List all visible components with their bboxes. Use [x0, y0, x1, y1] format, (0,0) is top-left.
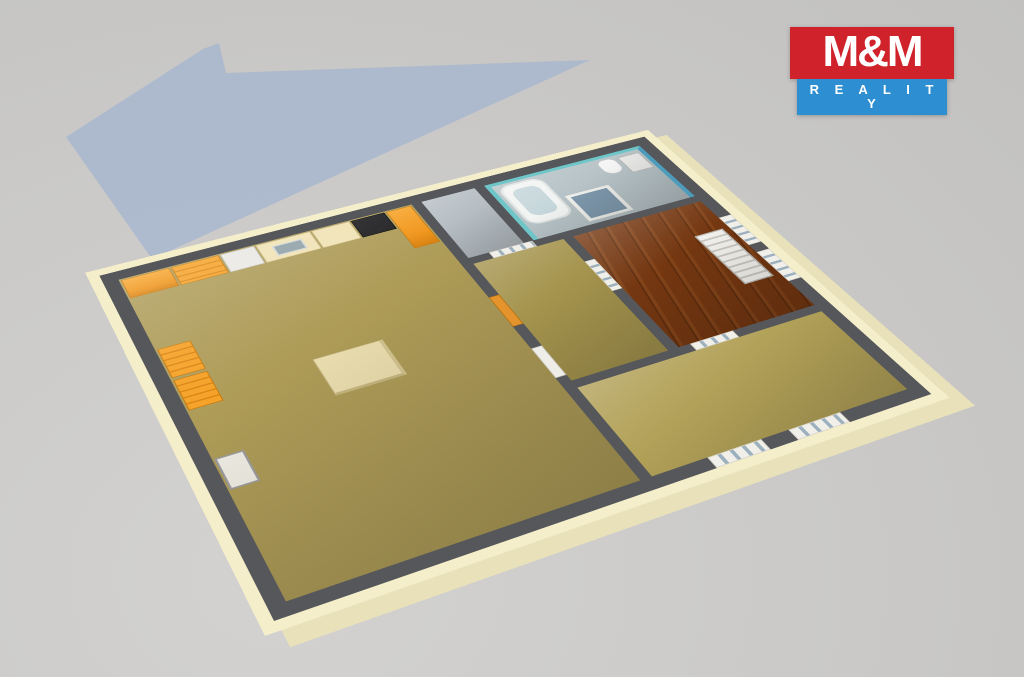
- side-drawer-cabinet: [157, 340, 206, 378]
- sink-vanity: [616, 152, 655, 173]
- dishwasher: [220, 246, 265, 272]
- kitchen-cabinet: [121, 268, 179, 299]
- kitchen-island: [312, 339, 407, 395]
- chimney-box: [214, 450, 260, 490]
- sink-counter: [256, 232, 322, 263]
- kitchen-drawer-cabinet: [171, 255, 229, 285]
- kitchen-counter: [311, 222, 361, 248]
- mm-reality-logo: M&M R E A L I T Y: [790, 27, 954, 115]
- logo-subtitle: R E A L I T Y: [797, 79, 947, 115]
- render-canvas: M&M R E A L I T Y: [0, 0, 1024, 677]
- side-drawer-cabinet: [173, 371, 223, 411]
- kitchen-sink: [272, 239, 308, 256]
- logo-title: M&M: [790, 27, 954, 79]
- cooktop: [351, 213, 397, 238]
- toilet: [595, 158, 627, 176]
- bathtub-basin: [510, 184, 561, 217]
